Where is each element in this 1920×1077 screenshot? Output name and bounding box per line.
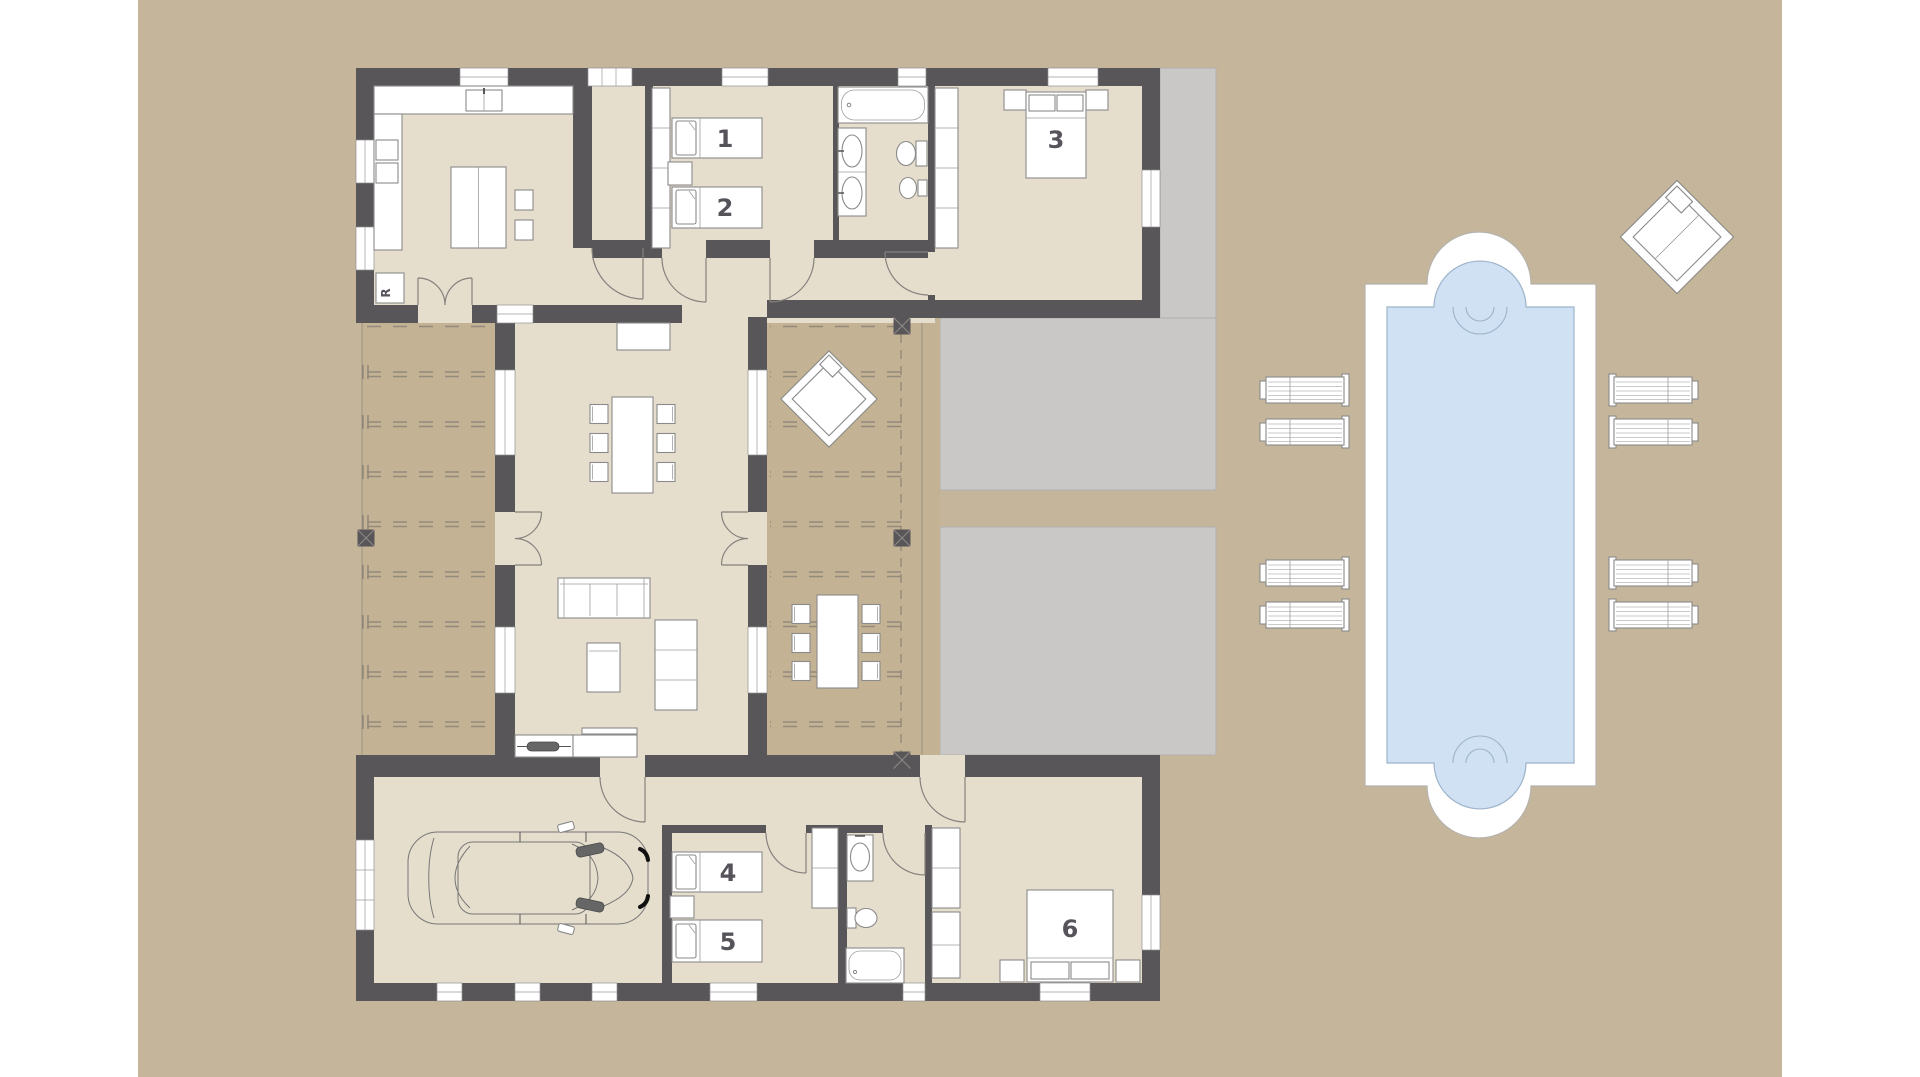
media-sideboard — [573, 735, 637, 757]
lounger-west-4 — [1260, 599, 1349, 631]
bathtub-north — [838, 87, 928, 123]
floor-plan-canvas: R 1 2 — [0, 0, 1920, 1077]
nightstand-6-right — [1116, 960, 1140, 982]
closet-room6-b — [932, 912, 960, 978]
refrigerator-label: R — [379, 288, 393, 297]
fireplace — [515, 735, 573, 757]
window-bath2-south — [903, 983, 925, 1001]
nightstand-3-left — [1004, 90, 1026, 110]
island-stool-2 — [515, 220, 533, 240]
window-garage-south-1 — [437, 983, 462, 1001]
window-bedroom12-north — [722, 68, 768, 86]
window-kitchen-west-2 — [356, 227, 374, 270]
closet-room6-a — [932, 828, 960, 908]
window-living-west-1 — [495, 370, 515, 455]
closet-bedroom12 — [652, 88, 670, 248]
pool-water — [1387, 261, 1574, 809]
swimming-pool — [1365, 232, 1596, 838]
lounger-east-4 — [1609, 599, 1698, 631]
island-stool-1 — [515, 190, 533, 210]
window-kitchen-south — [497, 305, 533, 323]
refrigerator: R — [376, 273, 404, 303]
window-living-west-2 — [495, 627, 515, 693]
sofa — [558, 578, 650, 618]
bidet-north — [900, 178, 928, 199]
kitchen-sink — [466, 88, 502, 111]
lounger-west-1 — [1260, 374, 1349, 406]
window-living-east-1 — [748, 370, 767, 455]
window-bath-north — [898, 68, 926, 86]
window-room6-south — [1040, 983, 1090, 1001]
tv — [582, 728, 637, 734]
post-west — [358, 530, 375, 547]
nightstand-6-left — [1000, 960, 1024, 982]
window-kitchen-north — [460, 68, 508, 86]
toilet-south — [847, 908, 877, 928]
room-6-label: 6 — [1062, 915, 1079, 943]
room-3-label: 3 — [1048, 126, 1065, 154]
vanity-north — [838, 128, 866, 216]
floor-plan-drawing: R 1 2 — [0, 0, 1920, 1077]
nightstand-12 — [668, 162, 692, 185]
nightstand-45 — [670, 896, 694, 918]
outdoor-dining-set — [792, 595, 880, 688]
lounger-east-2 — [1609, 416, 1698, 448]
post-east-2 — [894, 530, 911, 547]
outdoor-table — [817, 595, 858, 688]
closet-room45 — [812, 828, 838, 908]
sideboard-north — [617, 323, 670, 350]
lounger-east-1 — [1609, 374, 1698, 406]
patio-upper — [940, 318, 1216, 490]
window-garage-south-2 — [515, 983, 540, 1001]
lounger-east-3 — [1609, 557, 1698, 589]
window-room45-south — [710, 983, 757, 1001]
nightstand-3-right — [1086, 90, 1108, 110]
lounger-west-2 — [1260, 416, 1349, 448]
lounger-west-3 — [1260, 557, 1349, 589]
toilet-north — [897, 141, 928, 166]
window-garage-south-3 — [592, 983, 617, 1001]
window-kitchen-west-1 — [356, 140, 374, 183]
armchair — [587, 643, 620, 692]
bathtub-south — [846, 948, 904, 983]
room-5-label: 5 — [720, 928, 737, 956]
entry-door-north — [588, 68, 632, 86]
window-bedroom3-east — [1142, 170, 1160, 227]
window-room6-east — [1142, 895, 1160, 950]
window-bedroom3-north — [1048, 68, 1098, 86]
shelf-unit — [655, 620, 697, 710]
post-east-3 — [894, 752, 911, 769]
garage-door-west — [356, 840, 374, 930]
covered-terrace-west — [362, 323, 495, 755]
post-east-1 — [894, 318, 911, 335]
room-2-label: 2 — [717, 194, 734, 222]
dining-table — [612, 397, 653, 493]
kitchen-island — [451, 167, 506, 248]
closet-bedroom3 — [935, 88, 958, 248]
patio-lower — [940, 527, 1216, 755]
window-living-east-2 — [748, 627, 767, 693]
room-4-label: 4 — [720, 859, 737, 887]
room-1-label: 1 — [717, 125, 734, 153]
vanity-south — [847, 835, 873, 881]
